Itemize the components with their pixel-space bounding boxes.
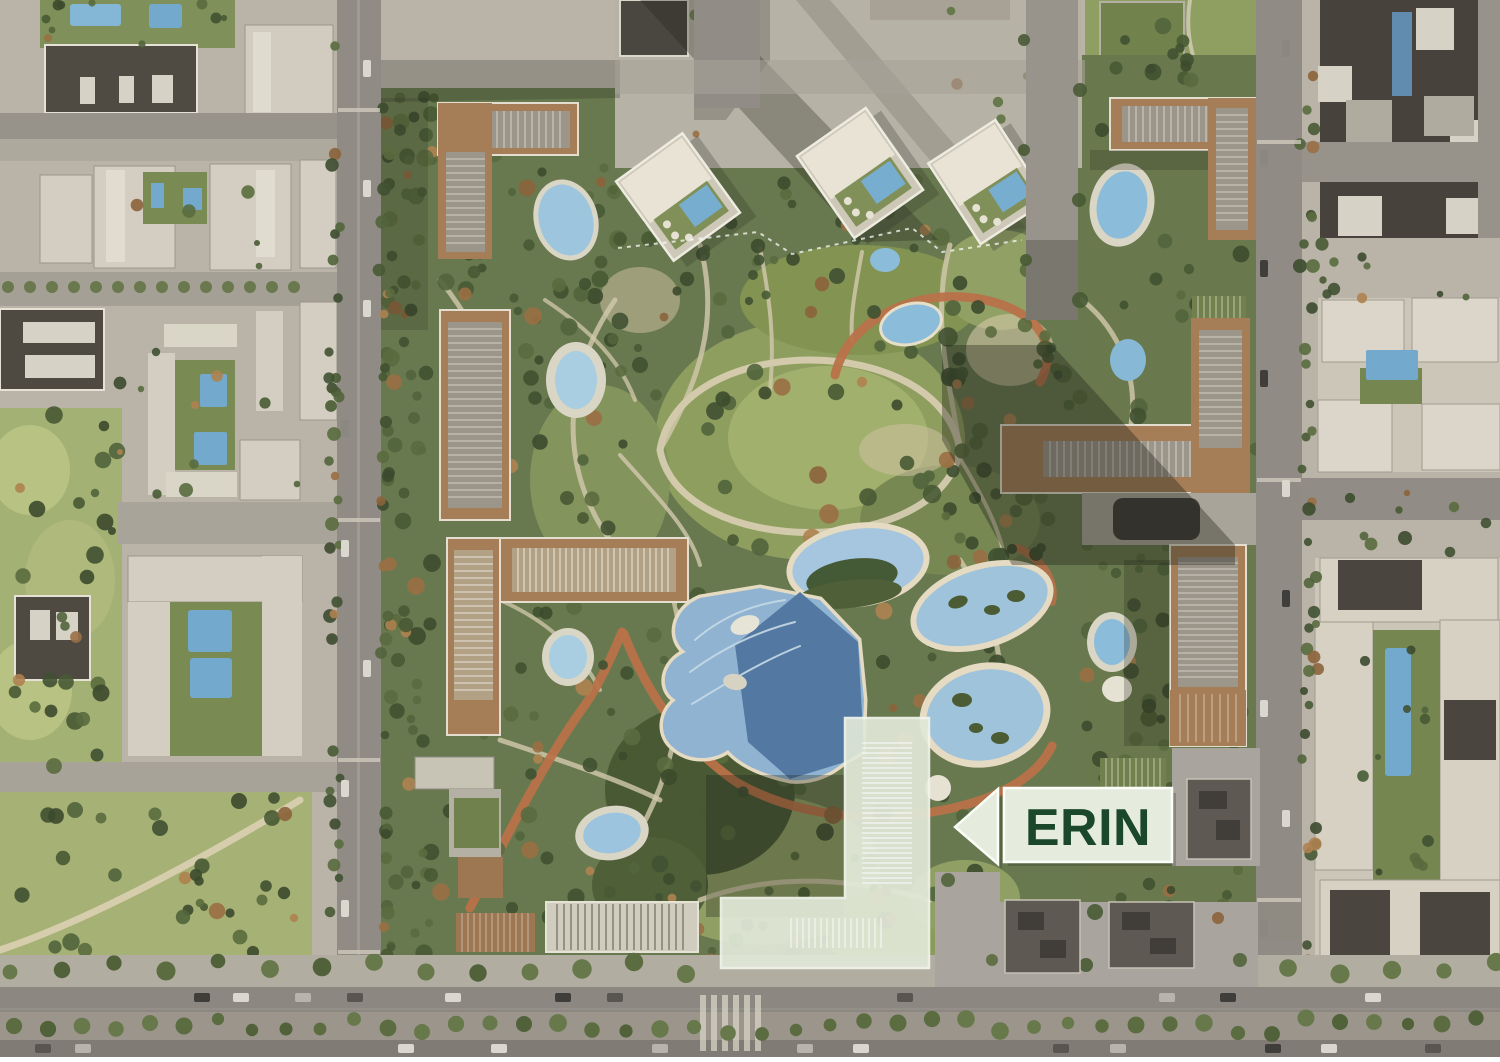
svg-text:ERIN: ERIN	[1025, 799, 1151, 857]
